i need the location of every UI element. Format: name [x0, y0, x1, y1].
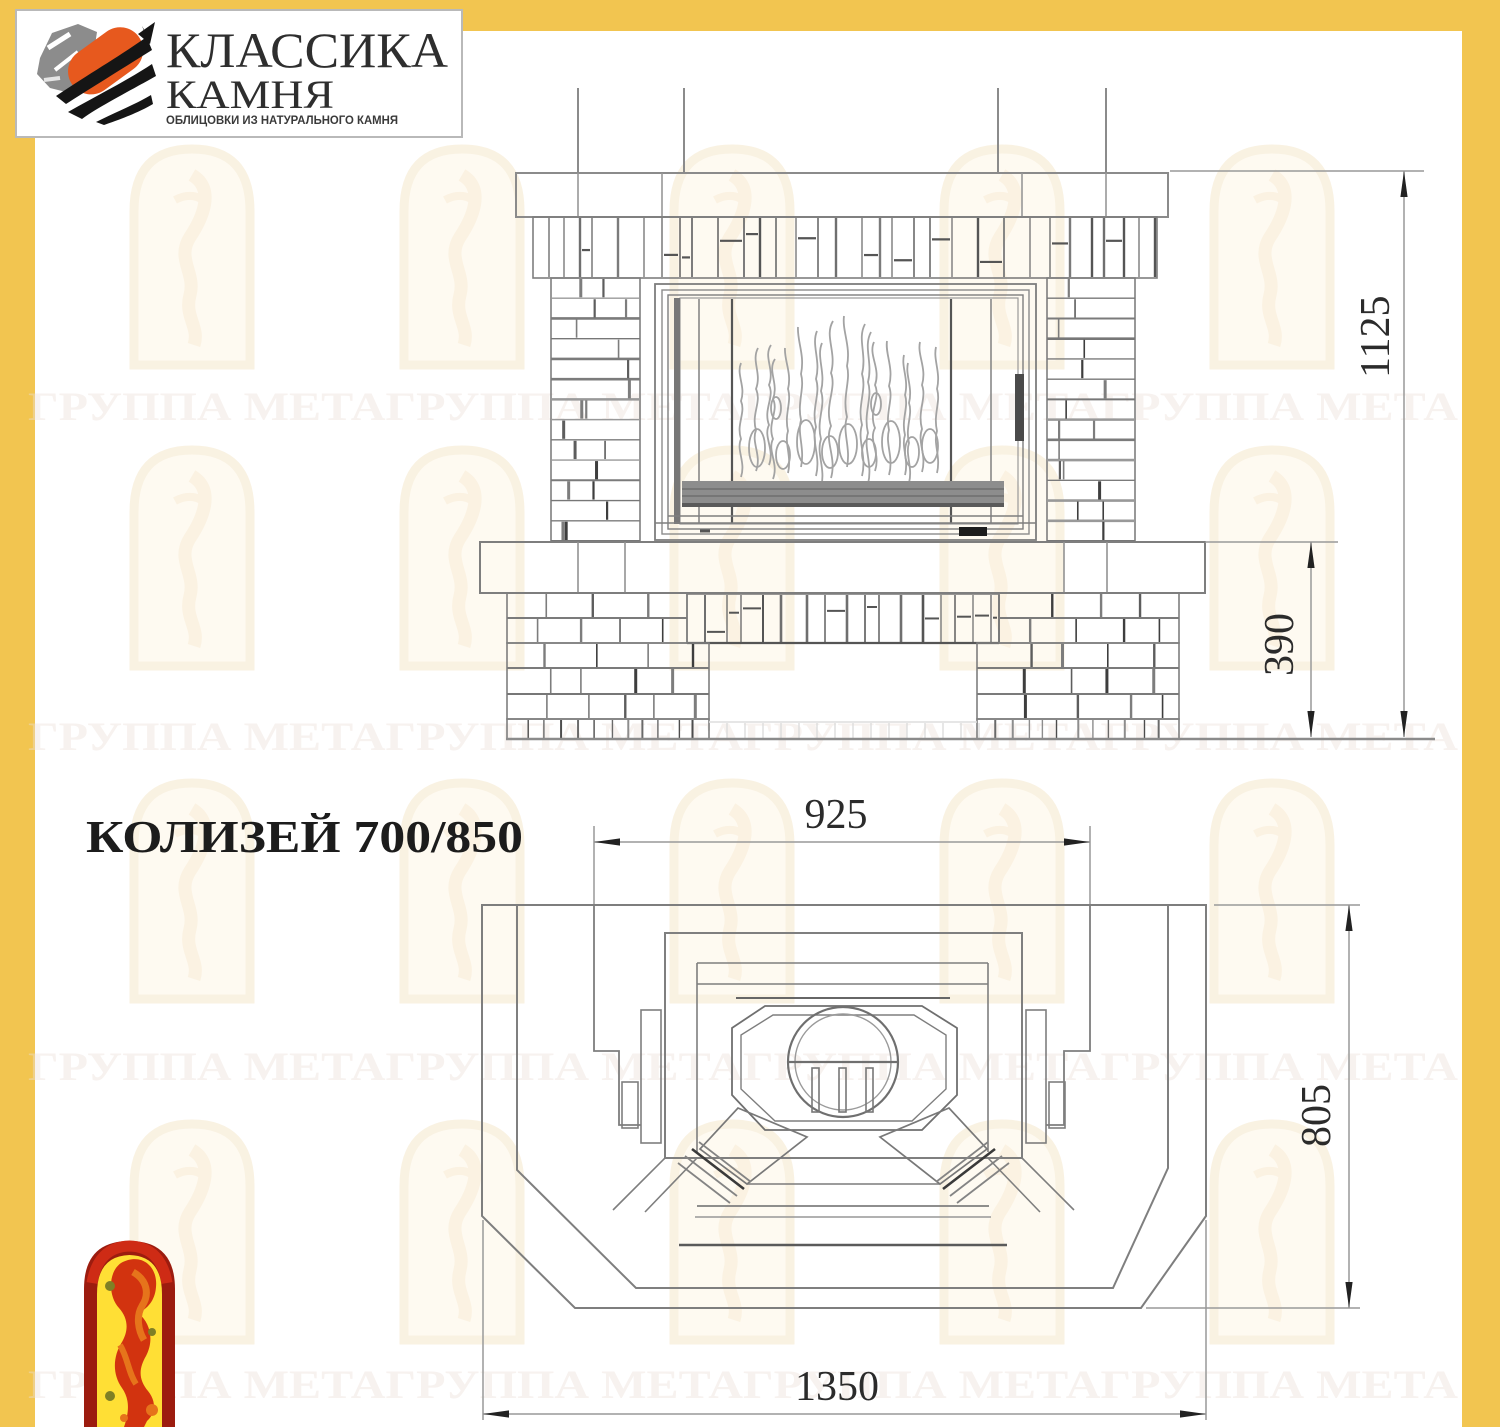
svg-text:КАМНЯ: КАМНЯ — [166, 72, 334, 117]
svg-text:925: 925 — [805, 792, 868, 838]
svg-text:ГРУППА МЕТАГРУППА МЕТАГРУППА М: ГРУППА МЕТАГРУППА МЕТАГРУППА МЕТАГРУППА … — [28, 1362, 1458, 1407]
svg-text:ОБЛИЦОВКИ ИЗ НАТУРАЛЬНОГО КАМН: ОБЛИЦОВКИ ИЗ НАТУРАЛЬНОГО КАМНЯ — [166, 115, 398, 127]
svg-text:1350: 1350 — [795, 1364, 879, 1410]
svg-text:1125: 1125 — [1353, 296, 1399, 378]
svg-text:ГРУППА МЕТАГРУППА МЕТАГРУППА М: ГРУППА МЕТАГРУППА МЕТАГРУППА МЕТАГРУППА … — [28, 714, 1458, 759]
svg-text:КОЛИЗЕЙ 700/850: КОЛИЗЕЙ 700/850 — [86, 811, 523, 862]
svg-text:805: 805 — [1294, 1084, 1340, 1147]
svg-text:ГРУППА МЕТАГРУППА МЕТАГРУППА М: ГРУППА МЕТАГРУППА МЕТАГРУППА МЕТАГРУППА … — [28, 1044, 1458, 1089]
svg-text:390: 390 — [1257, 613, 1303, 676]
svg-text:КЛАССИКА: КЛАССИКА — [166, 22, 448, 78]
